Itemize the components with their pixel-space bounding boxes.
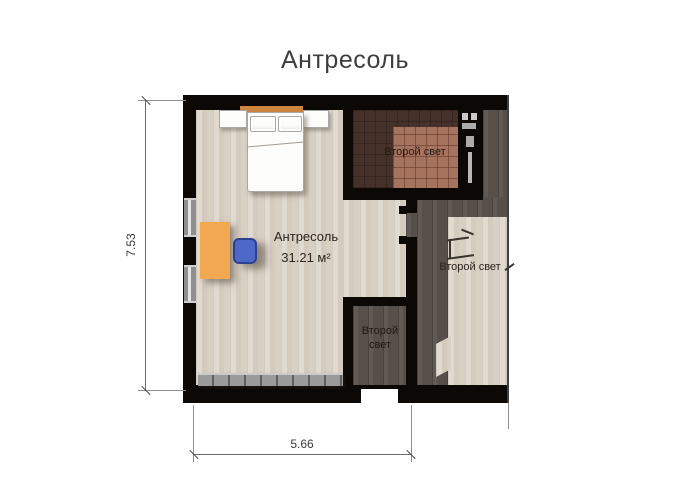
page-title: Антресоль (0, 46, 690, 75)
chair (233, 238, 257, 264)
top-right-floor (483, 110, 508, 200)
stair-mark (471, 113, 477, 120)
dim-value-horizontal: 5.66 (272, 437, 332, 451)
void-room-wall-left (343, 110, 353, 200)
door-opening (406, 213, 417, 237)
dim-line-vertical (145, 100, 146, 391)
dim-line-horizontal (193, 454, 411, 455)
stair-mark (462, 113, 468, 120)
floor-plan-page: Антресоль Антресоль 31. (0, 0, 697, 502)
room-area-label: 31.21 м² (256, 250, 356, 265)
small-void-wall-top (343, 297, 417, 306)
window (184, 265, 196, 303)
door-jamb-bottom (399, 236, 407, 244)
wall-left (183, 95, 196, 403)
window (184, 198, 196, 237)
wall-bottom (183, 385, 509, 403)
right-area-light-inset (448, 217, 508, 385)
void-label-right: Второй свет (426, 261, 514, 273)
plan-right-edge (507, 95, 509, 403)
void-room-wall-bottom (343, 188, 483, 200)
room-name-label: Антресоль (256, 229, 356, 244)
door-jamb-top (399, 206, 407, 214)
void-label-top: Второй свет (365, 146, 465, 158)
wall-top (183, 95, 509, 110)
main-room-floor-extension (343, 200, 407, 297)
stairs-icon (449, 239, 451, 258)
void-label-small-line1: Второй (347, 325, 413, 337)
stair-mark (466, 136, 474, 147)
desk (200, 222, 230, 279)
stair-mark (462, 123, 476, 129)
void-label-small-line2: свет (347, 339, 413, 351)
wall-bottom-notch (361, 389, 398, 403)
pillow (278, 116, 302, 132)
dim-value-vertical: 7.53 (124, 217, 138, 273)
rug (393, 127, 458, 190)
nightstand-left (219, 110, 247, 128)
divider-wall-upper (406, 200, 417, 213)
pillow (250, 116, 276, 132)
railing (198, 373, 343, 386)
dim-extension (508, 403, 509, 429)
nightstand-right (303, 110, 329, 128)
divider-wall-lower (406, 237, 417, 385)
stair-mark (468, 152, 472, 183)
